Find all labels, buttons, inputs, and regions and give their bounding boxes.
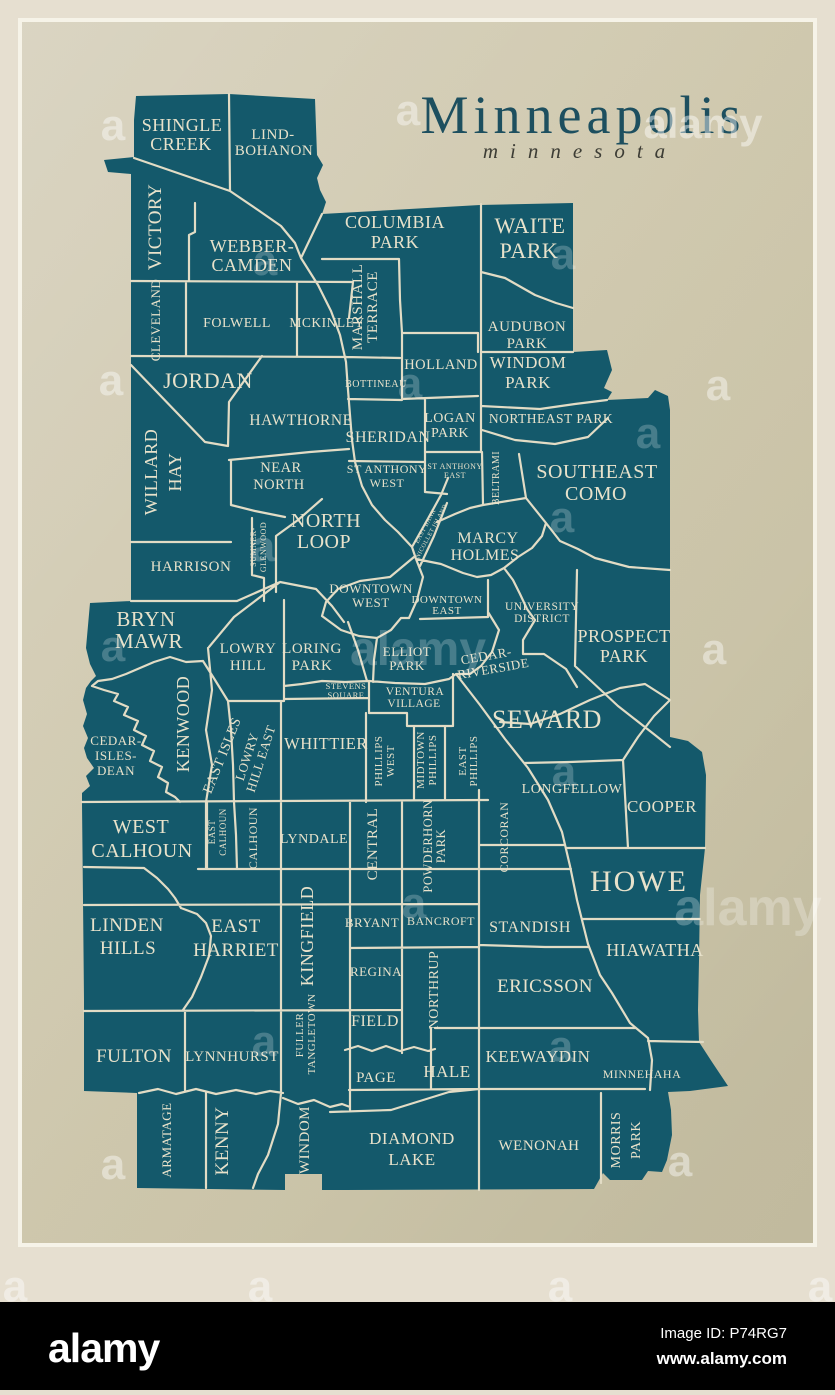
svg-text:WEST: WEST (352, 595, 389, 610)
svg-text:CORCORAN: CORCORAN (497, 802, 511, 873)
svg-text:WENONAH: WENONAH (499, 1138, 580, 1154)
svg-text:WINDOM: WINDOM (297, 1106, 313, 1174)
svg-text:NORTH: NORTH (291, 510, 361, 532)
svg-text:LOOP: LOOP (297, 531, 351, 553)
svg-text:EAST: EAST (432, 605, 462, 617)
svg-text:DEAN: DEAN (97, 763, 135, 778)
svg-text:alamy: alamy (643, 100, 763, 147)
svg-text:a: a (551, 230, 576, 279)
svg-text:a: a (702, 625, 727, 674)
svg-text:SEWARD: SEWARD (492, 705, 602, 734)
svg-text:MINNEHAHA: MINNEHAHA (603, 1067, 682, 1081)
svg-text:LINDEN: LINDEN (90, 915, 164, 936)
svg-text:WINDOM: WINDOM (490, 353, 567, 372)
svg-text:a: a (252, 1017, 277, 1066)
svg-text:PARK: PARK (600, 646, 648, 666)
svg-text:PHILLIPS: PHILLIPS (373, 735, 385, 786)
svg-text:STANDISH: STANDISH (489, 919, 571, 936)
svg-text:a: a (101, 101, 126, 150)
svg-text:a: a (636, 409, 661, 458)
svg-text:MARCY: MARCY (457, 530, 518, 547)
svg-text:FULTON: FULTON (96, 1046, 172, 1067)
svg-text:a: a (549, 1022, 574, 1071)
svg-text:WILLARD: WILLARD (141, 429, 161, 515)
svg-text:a: a (668, 1137, 693, 1186)
svg-text:DOWNTOWN: DOWNTOWN (329, 581, 412, 596)
svg-text:LAKE: LAKE (388, 1150, 435, 1169)
svg-text:PARK: PARK (505, 373, 551, 392)
svg-text:HARRIET: HARRIET (193, 940, 279, 961)
svg-text:a: a (706, 361, 731, 410)
svg-text:LOWRY: LOWRY (220, 641, 277, 657)
svg-text:alamy: alamy (48, 1325, 160, 1371)
svg-text:BOHANON: BOHANON (235, 143, 314, 159)
svg-text:WEST: WEST (113, 816, 169, 838)
svg-text:a: a (101, 1140, 126, 1189)
svg-text:www.alamy.com: www.alamy.com (656, 1349, 787, 1368)
svg-text:a: a (251, 522, 276, 571)
svg-text:PARK: PARK (629, 1121, 644, 1159)
svg-text:KENNY: KENNY (212, 1107, 233, 1176)
svg-text:ST ANTHONY: ST ANTHONY (347, 462, 427, 476)
svg-text:PARK: PARK (292, 658, 333, 674)
svg-text:CLEVELAND: CLEVELAND (148, 279, 163, 362)
svg-text:HILLS: HILLS (100, 938, 156, 959)
svg-text:CALHOUN: CALHOUN (246, 807, 260, 869)
svg-text:a: a (550, 493, 575, 542)
svg-text:NORTHRUP: NORTHRUP (427, 951, 442, 1030)
svg-text:WEST: WEST (385, 745, 397, 777)
svg-text:HARRISON: HARRISON (151, 559, 232, 575)
svg-text:LORING: LORING (282, 641, 342, 657)
svg-text:HAY: HAY (165, 453, 185, 492)
svg-text:ISLES-: ISLES- (95, 748, 137, 763)
svg-text:PHILLIPS: PHILLIPS (427, 734, 439, 785)
svg-text:HILL: HILL (230, 658, 266, 674)
svg-text:COMO: COMO (565, 483, 627, 505)
svg-text:VENTURA: VENTURA (386, 686, 445, 698)
svg-text:DISTRICT: DISTRICT (514, 613, 570, 625)
svg-text:a: a (552, 747, 577, 796)
svg-text:NORTH: NORTH (253, 477, 305, 493)
svg-text:FULLER: FULLER (294, 1013, 306, 1058)
svg-text:a: a (402, 879, 427, 928)
svg-text:VICTORY: VICTORY (145, 184, 166, 271)
svg-text:BRYN: BRYN (116, 607, 175, 631)
svg-text:DIAMOND: DIAMOND (369, 1129, 455, 1148)
svg-text:SHERIDAN: SHERIDAN (346, 429, 431, 446)
svg-text:HAWTHORNE: HAWTHORNE (249, 412, 352, 429)
svg-text:PARK: PARK (434, 829, 448, 863)
svg-text:SOUTHEAST: SOUTHEAST (536, 461, 657, 483)
svg-text:TANGLETOWN: TANGLETOWN (306, 994, 318, 1075)
svg-text:EAST: EAST (211, 916, 261, 937)
svg-text:NEAR: NEAR (260, 460, 301, 476)
svg-text:HOLMES: HOLMES (451, 547, 520, 564)
svg-text:LIND-: LIND- (251, 127, 294, 143)
svg-text:SQUARE: SQUARE (327, 690, 364, 700)
svg-text:KEEWAYDIN: KEEWAYDIN (486, 1047, 591, 1066)
svg-text:CALHOUN: CALHOUN (218, 808, 228, 856)
svg-text:HALE: HALE (423, 1062, 470, 1081)
svg-text:EAST: EAST (207, 820, 217, 845)
svg-text:a: a (101, 622, 126, 671)
svg-text:MORRIS: MORRIS (609, 1112, 624, 1169)
svg-text:ST ANTHONY: ST ANTHONY (427, 462, 482, 471)
svg-text:PARK: PARK (500, 238, 559, 263)
svg-text:CREEK: CREEK (150, 134, 212, 154)
svg-text:PARK: PARK (507, 336, 548, 352)
svg-text:PHILLIPS: PHILLIPS (468, 735, 480, 786)
svg-text:UNIVERSITY: UNIVERSITY (505, 601, 579, 613)
svg-text:COOPER: COOPER (627, 797, 697, 816)
svg-text:PAGE: PAGE (356, 1070, 396, 1086)
svg-text:HIAWATHA: HIAWATHA (606, 940, 704, 960)
svg-text:REGINA: REGINA (350, 964, 402, 979)
svg-text:PARK: PARK (371, 232, 419, 252)
svg-text:KENWOOD: KENWOOD (173, 676, 193, 772)
svg-text:CEDAR-: CEDAR- (90, 733, 141, 748)
svg-text:COLUMBIA: COLUMBIA (345, 212, 445, 232)
svg-text:TERRACE: TERRACE (365, 271, 381, 343)
svg-text:WEST: WEST (370, 476, 405, 490)
svg-text:FOLWELL: FOLWELL (203, 316, 271, 331)
svg-text:a: a (253, 236, 278, 285)
svg-text:AUDUBON: AUDUBON (488, 319, 567, 335)
svg-text:alamy: alamy (674, 879, 822, 937)
svg-text:JORDAN: JORDAN (163, 368, 253, 393)
svg-text:a: a (396, 86, 421, 135)
svg-text:Image ID: P74RG7: Image ID: P74RG7 (660, 1325, 787, 1342)
svg-text:alamy: alamy (350, 623, 486, 676)
svg-text:CALHOUN: CALHOUN (91, 840, 192, 862)
svg-text:FIELD: FIELD (351, 1013, 399, 1030)
svg-text:ARMATAGE: ARMATAGE (159, 1102, 174, 1177)
svg-text:EAST: EAST (444, 471, 466, 480)
svg-text:LOGAN: LOGAN (424, 411, 476, 426)
svg-text:BELTRAMI: BELTRAMI (491, 451, 502, 505)
svg-text:VILLAGE: VILLAGE (387, 698, 440, 710)
svg-text:PROSPECT: PROSPECT (577, 626, 670, 646)
svg-text:PARK: PARK (431, 426, 469, 441)
svg-text:BRYANT: BRYANT (345, 915, 399, 930)
svg-text:MARSHALL: MARSHALL (350, 264, 366, 351)
svg-text:KINGFIELD: KINGFIELD (297, 886, 317, 987)
svg-text:CENTRAL: CENTRAL (365, 808, 381, 881)
svg-text:NORTHEAST PARK: NORTHEAST PARK (489, 411, 613, 426)
svg-text:MIDTOWN: MIDTOWN (415, 731, 427, 789)
svg-text:ERICSSON: ERICSSON (497, 976, 593, 997)
svg-text:LYNDALE: LYNDALE (280, 832, 348, 847)
svg-text:a: a (99, 356, 124, 405)
svg-text:SHINGLE: SHINGLE (142, 115, 223, 135)
svg-text:a: a (398, 359, 423, 408)
svg-text:WHITTIER: WHITTIER (284, 734, 368, 753)
